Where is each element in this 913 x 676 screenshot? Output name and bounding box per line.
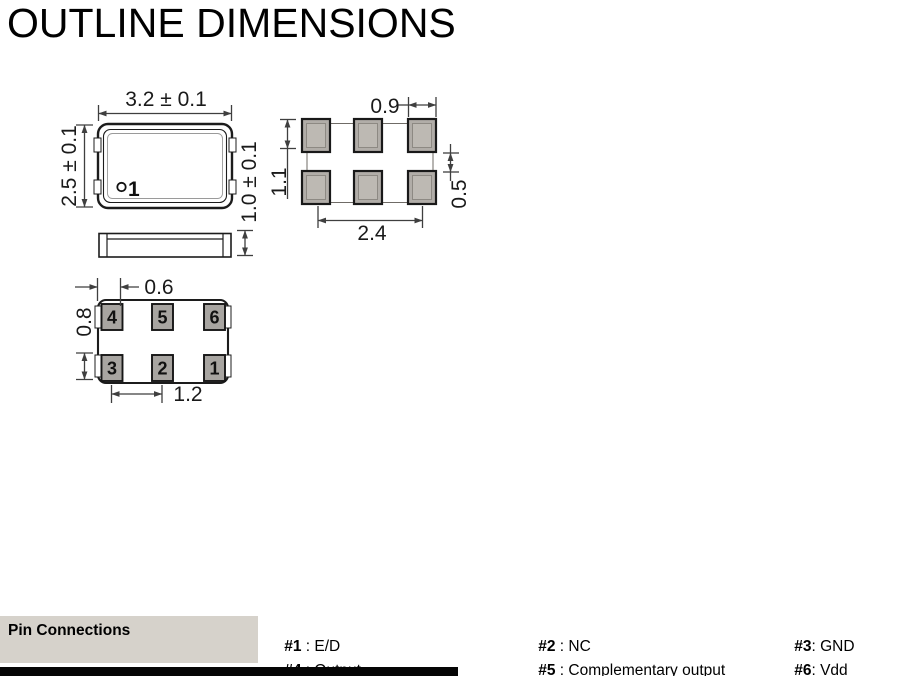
dim-land-pad-width-label: 0.9 [370,95,399,118]
pin-pad-2: 2 [152,355,173,381]
land-pad [354,119,382,152]
pin1-marker-icon [117,183,125,191]
pin-id: #5 [538,662,555,676]
dim-bottom-pitch-label: 1.2 [173,383,202,406]
dim-bottom-pitch: 1.2 [112,383,203,406]
pin-pad-4: 4 [102,304,123,330]
pin-connections-heading: Pin Connections [0,616,258,663]
dim-land-pad-height: 1.1 [268,120,296,200]
pin-number: 6 [209,308,219,328]
dim-land-row-gap-label: 0.5 [448,179,471,208]
outline-drawing: 1 3.2 ± 0.1 2.5 ± 0.1 1.0 ± 0.1 [0,80,500,420]
page-title: OUTLINE DIMENSIONS [7,0,456,47]
land-pad [408,119,436,152]
land-pad [302,119,330,152]
dim-bottom-pad-height-label: 0.8 [73,307,96,336]
top-view: 1 [94,124,236,208]
pin-pad-1: 1 [204,355,225,381]
pin1-label: 1 [128,178,140,201]
pin-pad-3: 3 [102,355,123,381]
pin-number: 5 [157,308,167,328]
pin-number: 1 [209,359,219,379]
pin-function: : Complementary output [555,662,725,676]
dim-top-view-width: 3.2 ± 0.1 [99,88,232,121]
pin-function: : Vdd [811,662,847,676]
land-pad [354,171,382,204]
pin-connection-5: #5 : Complementary output [521,644,725,676]
pin-number: 2 [157,359,167,379]
pin-number: 3 [107,359,117,379]
land-pattern-pads [302,119,436,204]
dim-land-span-label: 2.4 [357,222,387,245]
land-pad [302,171,330,204]
pin-connection-6: #6: Vdd [777,644,848,676]
dim-bottom-pad-width-label: 0.6 [144,276,173,299]
pin-pad-5: 5 [152,304,173,330]
footer-bar [0,667,458,676]
dim-bottom-pad-height: 0.8 [73,307,96,379]
dim-land-span: 2.4 [318,206,423,245]
dim-thickness-label: 1.0 ± 0.1 [238,141,261,223]
page: OUTLINE DIMENSIONS 1 [0,0,913,676]
pin-id: #6 [794,662,811,676]
pin-pad-6: 6 [204,304,225,330]
dim-land-pad-height-label: 1.1 [268,167,291,196]
top-view-body [98,124,232,208]
dim-thickness: 1.0 ± 0.1 [237,141,261,255]
dim-land-pad-width: 0.9 [370,95,436,118]
dim-height-label: 2.5 ± 0.1 [58,125,81,207]
bottom-view: 4 5 6 3 2 1 [95,300,231,383]
pin-number: 4 [107,308,117,328]
dim-width-label: 3.2 ± 0.1 [125,88,207,111]
land-pattern [302,119,436,204]
land-pad [408,171,436,204]
dim-land-row-gap: 0.5 [443,144,471,209]
dim-top-view-height: 2.5 ± 0.1 [58,125,93,207]
side-view [99,234,231,258]
side-view-body [99,234,231,258]
pin-connections-heading-label: Pin Connections [8,622,130,639]
